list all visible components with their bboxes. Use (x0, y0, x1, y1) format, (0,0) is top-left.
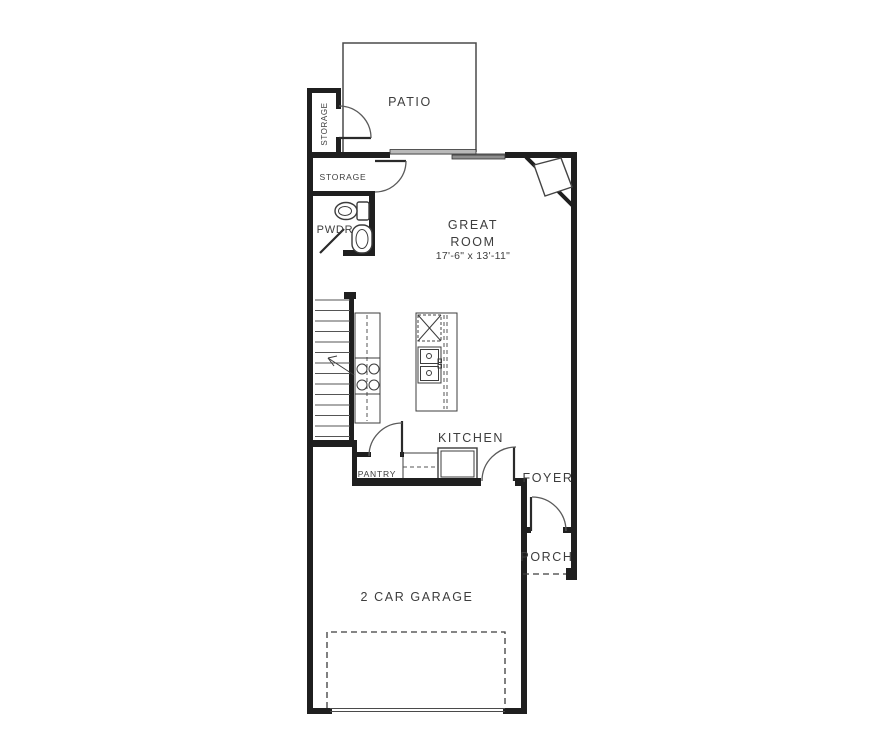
storage-door-swing (375, 161, 406, 192)
stair-treads (315, 300, 350, 437)
firebox (534, 158, 572, 196)
wall-segment (503, 708, 527, 714)
interior-storage-label: STORAGE (319, 172, 366, 182)
wall-segment (307, 88, 341, 93)
sliding-panel (390, 150, 476, 155)
toilet-icon (335, 202, 369, 220)
wall-segment (307, 152, 313, 714)
great-room-label-line1: GREAT (448, 218, 498, 232)
great-room-label-line2: ROOM (450, 235, 495, 249)
wall-segment (571, 152, 577, 580)
dishwasher-icon (418, 315, 441, 341)
powder-room-label: PWDR (317, 224, 354, 236)
garage-door-dashed-outline (327, 632, 505, 708)
wall-segment (352, 478, 481, 486)
porch-post (566, 568, 577, 580)
wall-segment (521, 481, 527, 714)
stair-newel (344, 292, 356, 299)
sliding-panel (452, 155, 505, 159)
staircase (313, 292, 357, 447)
garage-entry-door-swing (482, 447, 516, 481)
wall-segment (313, 440, 357, 447)
exterior-storage (307, 88, 371, 152)
kitchen (355, 313, 477, 480)
wall-segment (521, 527, 531, 533)
foyer-porch (521, 497, 577, 580)
porch-label: PORCH (520, 550, 573, 564)
kitchen-island (416, 313, 457, 411)
wall-segment (563, 527, 577, 533)
wall-segment (505, 152, 577, 158)
wall-segment (336, 137, 341, 152)
foyer-label: FOYER (522, 471, 573, 485)
wall-segment (307, 88, 312, 152)
sliding-glass-door (390, 150, 505, 160)
island-outline (416, 313, 457, 411)
front-door-swing (532, 497, 566, 531)
refrigerator-icon (438, 448, 477, 480)
wall-segment (307, 708, 332, 714)
floor-plan-page: PATIO STORAGE STORAGE PWDR GREAT ROOM 17… (0, 0, 883, 750)
great-room-dimensions: 17'-6" x 13'-11" (436, 250, 510, 262)
toilet-tank (357, 202, 369, 220)
double-sink-icon (418, 347, 442, 383)
exterior-storage-label: STORAGE (320, 102, 329, 145)
corner-fireplace (526, 157, 574, 207)
pantry-label: PANTRY (358, 469, 397, 479)
floor-plan-drawing: PATIO STORAGE STORAGE PWDR GREAT ROOM 17… (0, 0, 883, 750)
bathroom-sink-icon (352, 225, 372, 253)
kitchen-label: KITCHEN (438, 431, 504, 445)
storage-door-swing (339, 106, 371, 138)
wall-segment (307, 152, 390, 158)
wall-segment (313, 191, 375, 196)
pantry-door-swing (369, 423, 402, 456)
garage-label: 2 CAR GARAGE (361, 590, 474, 604)
patio-label: PATIO (388, 95, 432, 109)
